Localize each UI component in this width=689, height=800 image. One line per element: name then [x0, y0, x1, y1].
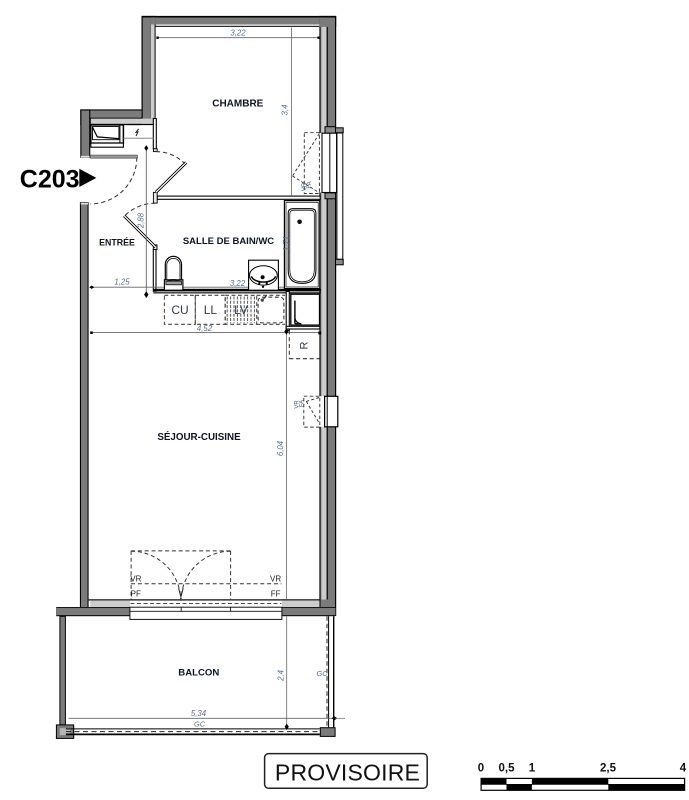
svg-text:FA: FA — [300, 400, 306, 407]
svg-text:1: 1 — [529, 763, 536, 775]
svg-text:VR: VR — [270, 575, 281, 584]
svg-text:4: 4 — [680, 763, 687, 775]
svg-text:GC: GC — [194, 719, 206, 728]
svg-text:R: R — [299, 341, 311, 349]
svg-text:0: 0 — [478, 763, 484, 775]
svg-text:PROVISOIRE: PROVISOIRE — [275, 759, 420, 785]
svg-text:LL: LL — [204, 303, 218, 317]
svg-text:FA: FA — [307, 181, 313, 188]
svg-text:GC: GC — [316, 669, 328, 678]
svg-text:2,88: 2,88 — [137, 212, 146, 229]
svg-text:PF: PF — [131, 590, 141, 599]
svg-text:3,22: 3,22 — [230, 279, 246, 288]
svg-text:CU: CU — [171, 303, 188, 317]
svg-text:2,5: 2,5 — [600, 763, 617, 775]
svg-text:4,52: 4,52 — [197, 324, 213, 333]
svg-text:5,34: 5,34 — [191, 709, 207, 718]
svg-text:ENTRÉE: ENTRÉE — [99, 238, 135, 248]
svg-text:SALLE DE BAIN/WC: SALLE DE BAIN/WC — [183, 236, 274, 247]
svg-text:FF: FF — [271, 590, 281, 599]
svg-text:3,22: 3,22 — [230, 28, 246, 37]
svg-text:3,4: 3,4 — [281, 104, 290, 116]
svg-text:SÉJOUR-CUISINE: SÉJOUR-CUISINE — [157, 431, 241, 443]
svg-text:CHAMBRE: CHAMBRE — [212, 99, 263, 110]
svg-text:LV: LV — [234, 303, 248, 317]
svg-text:2,4: 2,4 — [277, 669, 286, 682]
svg-text:6,04: 6,04 — [276, 440, 285, 456]
svg-text:BALCON: BALCON — [178, 668, 219, 679]
svg-text:1,25: 1,25 — [114, 278, 130, 287]
svg-text:0,5: 0,5 — [499, 763, 516, 775]
svg-text:1,71: 1,71 — [282, 236, 291, 251]
svg-text:VR: VR — [130, 575, 141, 584]
svg-text:C203: C203 — [20, 165, 80, 193]
